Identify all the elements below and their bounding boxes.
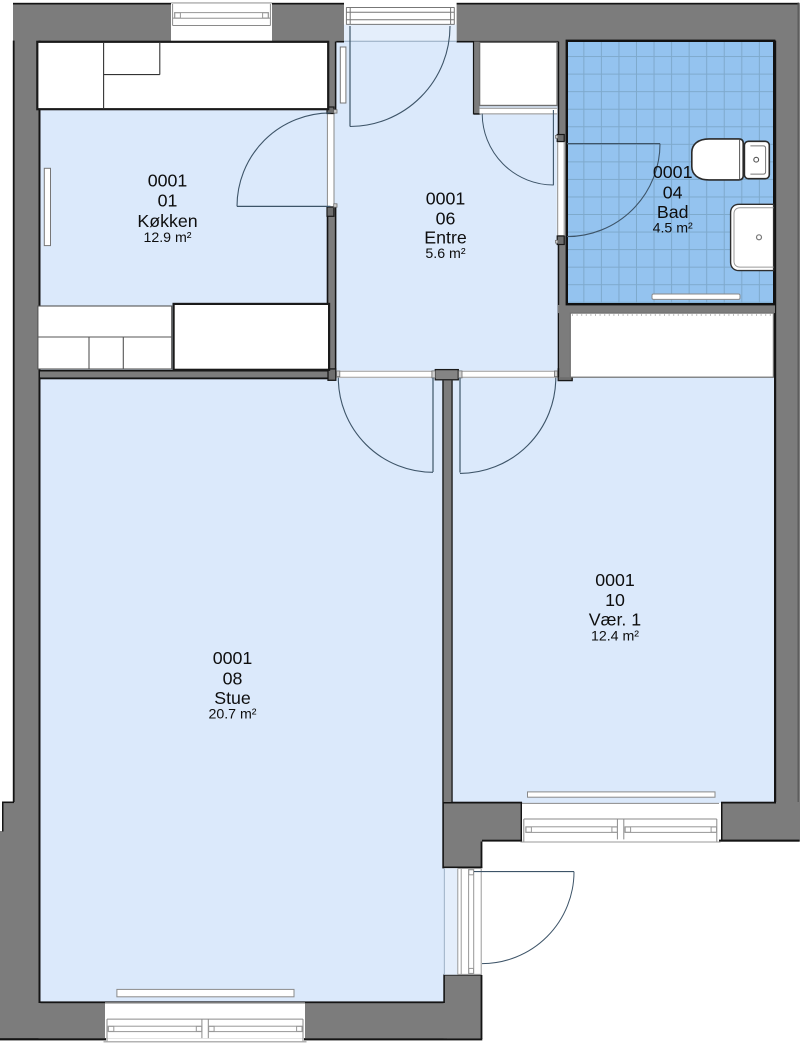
svg-text:4.5 m²: 4.5 m² bbox=[653, 221, 693, 237]
svg-text:Entre: Entre bbox=[424, 228, 467, 248]
svg-text:12.9 m²: 12.9 m² bbox=[143, 230, 191, 246]
svg-text:Vær. 1: Vær. 1 bbox=[589, 610, 641, 630]
svg-text:Bad: Bad bbox=[657, 202, 689, 222]
svg-text:0001: 0001 bbox=[426, 189, 466, 209]
svg-text:01: 01 bbox=[158, 191, 178, 211]
svg-text:10: 10 bbox=[605, 590, 625, 610]
svg-text:0001: 0001 bbox=[653, 162, 693, 182]
svg-text:Stue: Stue bbox=[214, 688, 251, 708]
svg-text:08: 08 bbox=[223, 669, 243, 689]
svg-text:12.4 m²: 12.4 m² bbox=[591, 628, 639, 644]
svg-text:0001: 0001 bbox=[595, 570, 635, 590]
svg-text:Køkken: Køkken bbox=[137, 211, 197, 231]
svg-text:5.6 m²: 5.6 m² bbox=[425, 246, 465, 262]
svg-text:0001: 0001 bbox=[148, 171, 188, 191]
svg-text:06: 06 bbox=[436, 209, 456, 229]
svg-text:20.7 m²: 20.7 m² bbox=[208, 707, 256, 723]
svg-text:0001: 0001 bbox=[213, 648, 253, 668]
svg-text:04: 04 bbox=[663, 183, 683, 203]
